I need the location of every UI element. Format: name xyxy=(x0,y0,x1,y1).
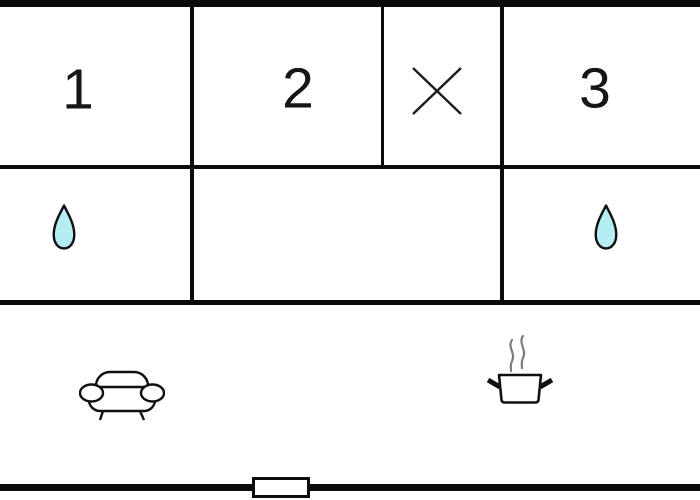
water-drop-icon xyxy=(592,202,620,252)
wall-vertical-room1-room2 xyxy=(190,7,194,303)
floor-plan: 1 2 3 xyxy=(0,0,700,500)
sofa-icon xyxy=(79,370,165,422)
wall-vertical-room2-crossed-cell xyxy=(381,7,384,167)
wall-vertical-crossed-cell-room3 xyxy=(500,7,504,303)
wall-top xyxy=(0,0,700,7)
window-door-marker xyxy=(252,477,310,498)
room-2-label: 2 xyxy=(282,61,314,118)
room-1-label: 1 xyxy=(62,62,94,119)
wall-mid-lower xyxy=(0,300,700,305)
water-drop-icon xyxy=(50,202,78,252)
cooking-pot-icon xyxy=(485,332,555,410)
wall-bottom xyxy=(0,484,700,491)
room-3-label: 3 xyxy=(579,61,611,118)
x-marker-icon xyxy=(409,64,465,118)
wall-mid-upper xyxy=(0,165,700,169)
